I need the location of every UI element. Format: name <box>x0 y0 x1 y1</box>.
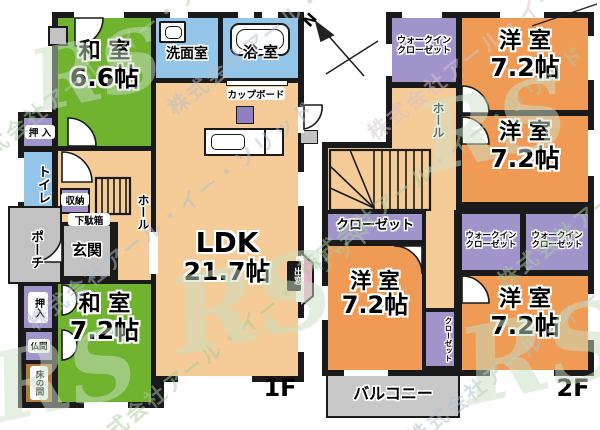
room-label-yoshitsu-br: 洋 室 7.2帖 <box>462 288 588 339</box>
oshiire-top-chip: 押 入 <box>25 125 55 139</box>
room-size: 6.6帖 <box>58 64 151 91</box>
room-label-hall-1f: ホール <box>131 186 149 238</box>
room-name: 洋 室 <box>462 30 588 54</box>
kitchen-counter <box>204 128 284 156</box>
room-label-closet-small: クローゼット <box>428 316 452 362</box>
bay-window-label: 出窓 <box>287 261 301 291</box>
floor-label-1f: 1F <box>255 376 305 402</box>
room-label-washitsu-6-6: 和 室 6.6帖 <box>58 40 151 91</box>
room-name: 洋 室 <box>328 270 422 293</box>
room-label-hall-2f: ホール <box>426 94 444 146</box>
floorplan-canvas: 和 室 6.6帖 洗面室 浴 室 カップボード LDK 21.7帖 押 入 トイ… <box>0 0 600 430</box>
kitchen-appliance <box>236 106 254 124</box>
stairs-2f <box>330 150 430 210</box>
kitchen-sink <box>211 134 245 150</box>
room-label-porch: ポーチ <box>24 222 42 276</box>
room-label-yoshitsu-mr: 洋 室 7.2帖 <box>462 121 588 172</box>
room-size: 7.2帖 <box>462 312 588 339</box>
roof-slope-line <box>532 4 597 26</box>
room-name: 洋 室 <box>462 288 588 312</box>
cupboard-label-chip: カップボード <box>227 87 285 100</box>
room-label-yoshitsu-tr: 洋 室 7.2帖 <box>462 30 588 81</box>
butsuma-chip: 仏間 <box>28 339 50 353</box>
room-name: LDK <box>156 228 298 258</box>
room-label-ldk: LDK 21.7帖 <box>156 228 298 285</box>
washer-tub <box>165 26 182 39</box>
counter-divider <box>264 130 266 154</box>
room-label-toilet: トイレ <box>27 156 49 212</box>
getabako-chip: 下駄箱 <box>68 213 110 226</box>
room-name: 和 室 <box>58 293 151 317</box>
room-label-balcony: バルコニー <box>326 385 460 402</box>
room-name: 和 室 <box>58 40 151 64</box>
room-size: 21.7帖 <box>156 258 298 285</box>
room-size: 7.2帖 <box>58 317 151 344</box>
room-label-yokushitsu: 浴 室 <box>223 44 298 60</box>
floor-label-2f: 2F <box>548 376 598 402</box>
cupboard-unit <box>226 80 288 86</box>
room-label-wic-left: ウォークイン クローゼット <box>460 232 522 250</box>
oshiire-bottom-chip: 押入 <box>28 292 48 323</box>
room-size: 7.2帖 <box>462 145 588 172</box>
north-arrow <box>316 22 378 76</box>
room-label-genkan: 玄関 <box>62 242 112 258</box>
room-label-senmenshitsu: 洗面室 <box>156 47 218 62</box>
room-name: 洋 室 <box>462 121 588 145</box>
room-size: 7.2帖 <box>462 54 588 81</box>
room-label-yoshitsu-bl: 洋 室 7.2帖 <box>328 270 422 319</box>
stairs-1f <box>96 178 130 214</box>
room-label-wic-right: ウォークイン クローゼット <box>524 232 590 250</box>
room-label-wic-top: ウォークイン クローゼット <box>392 37 456 56</box>
tokonoma-chip: 床の間 <box>30 366 48 400</box>
shuunou-chip: 収納 <box>61 193 89 206</box>
room-size: 7.2帖 <box>328 293 422 319</box>
room-label-closet-band: クローゼット <box>328 219 422 233</box>
washer-pan <box>159 21 186 43</box>
room-label-washitsu-7-2: 和 室 7.2帖 <box>58 293 151 344</box>
